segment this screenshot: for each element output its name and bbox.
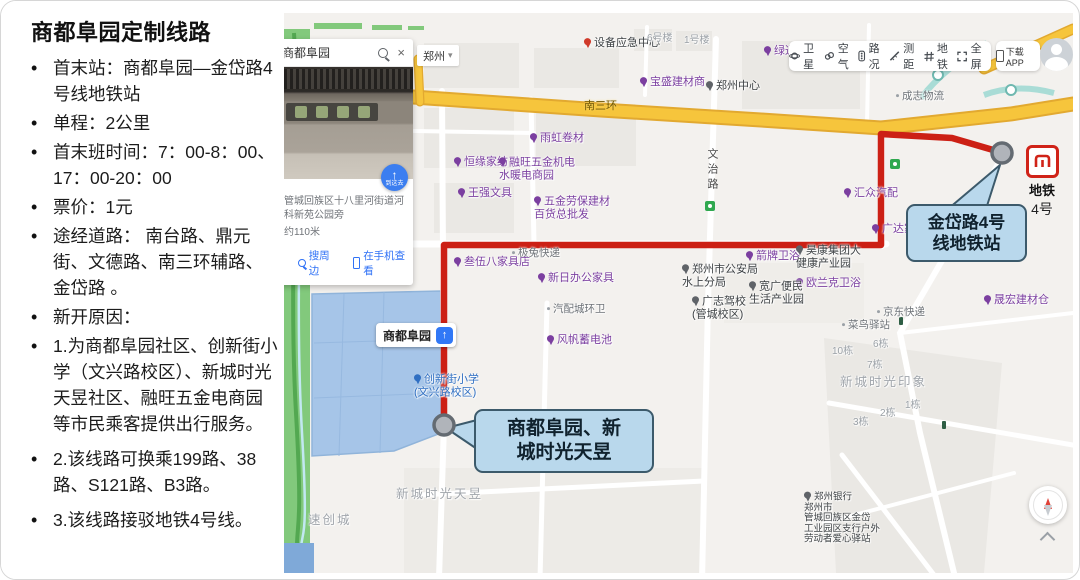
map-poi-label[interactable]: 箭牌卫浴 [746, 250, 800, 263]
start-callout-line1: 商都阜园、新 [476, 417, 652, 441]
compass-control[interactable] [1029, 486, 1067, 524]
place-card-panel: 商都阜园 × ↑ 到这去 管城回族区十八里河街道河科新苑公园旁 约110米 搜 [284, 39, 413, 285]
map-poi-label: 7栋 [867, 360, 883, 373]
poi-pin-icon [499, 157, 506, 164]
slide-frame: 商都阜园定制线路 首末站：商都阜园—金岱路4号线地铁站单程：2公里首末班时间：7… [0, 0, 1080, 580]
toolbar-satellite-button[interactable]: 卫星 [789, 40, 824, 72]
poi-pin-icon [804, 492, 811, 499]
map-poi-label[interactable]: 郑州市公安局 水上分局 [682, 263, 758, 288]
map-poi-label: 1栋 [905, 400, 921, 413]
view-on-mobile-link[interactable]: 在手机查看 [353, 248, 414, 278]
toolbar-label: 空气 [838, 40, 858, 72]
end-callout-line2: 线地铁站 [908, 233, 1025, 254]
map-poi-label[interactable]: 创新街小学 (文兴路校区) [414, 373, 479, 398]
map-poi-label[interactable]: 昊康集团大 健康产业园 [796, 244, 861, 269]
poi-pin-icon [749, 281, 756, 288]
place-chip[interactable]: 商都阜园 ↑ [376, 323, 456, 347]
poi-pin-icon [454, 157, 461, 164]
map-poi-label[interactable]: 叁伍八家具店 [454, 256, 530, 269]
building-sign [286, 103, 378, 121]
end-callout-pointer [948, 165, 1000, 209]
poi-pin-icon [458, 188, 465, 195]
road-name-label: 南三环 [584, 97, 617, 113]
map-poi-label[interactable]: 京东快递 [877, 306, 925, 319]
map-poi-label[interactable]: 晟宏建材仓 [984, 294, 1049, 307]
route-bullet: 票价：1元 [27, 194, 278, 220]
poi-pin-icon [984, 295, 991, 302]
map-poi-label[interactable]: 新日办公家具 [538, 272, 614, 285]
map-poi-label: 10栋 [832, 346, 853, 359]
map-poi-label: 新城时光天昱 [396, 488, 483, 501]
navigate-arrow-icon[interactable]: ↑ [436, 327, 453, 344]
map-poi-label: 2栋 [880, 408, 896, 421]
poi-pin-icon [538, 273, 545, 280]
map-poi-label[interactable]: 汽配城环卫 [547, 303, 606, 316]
map-poi-label[interactable]: 宽广便民 生活产业园 [749, 280, 804, 305]
map-toolbar: 卫星空气路况测距地铁全屏 [789, 41, 991, 71]
start-terminus-marker[interactable] [434, 415, 454, 435]
start-station-callout: 商都阜园、新 城时光天昱 [474, 409, 654, 473]
toolbar-traffic-button[interactable]: 路况 [858, 40, 889, 72]
map-poi-label[interactable]: 五金劳保建材 百货总批发 [534, 195, 610, 220]
map-poi-label[interactable]: 菜鸟驿站 [842, 319, 890, 332]
toolbar-metro-button[interactable]: 地铁 [924, 40, 958, 72]
road-name-label: 文治路 [704, 148, 720, 193]
poi-pin-icon [746, 251, 753, 258]
poi-pin-icon [844, 188, 851, 195]
map-poi-label[interactable]: 融旺五金机电 水暖电商园 [499, 156, 575, 181]
poi-pin-icon [530, 133, 537, 140]
poi-pin-icon [692, 296, 699, 303]
map-poi-label: 3栋 [853, 417, 869, 430]
place-links: 搜周边 在手机查看 [284, 240, 413, 278]
poi-pin-icon [682, 264, 689, 271]
map-poi-label: 新城时光印象 [840, 376, 927, 389]
poi-pin-icon [764, 46, 771, 53]
place-chip-label: 商都阜园 [383, 327, 431, 344]
route-info-sidebar: 商都阜园定制线路 首末站：商都阜园—金岱路4号线地铁站单程：2公里首末班时间：7… [1, 1, 284, 580]
toolbar-ruler-button[interactable]: 测距 [889, 40, 924, 72]
poi-pin-icon [547, 335, 554, 342]
end-callout-line1: 金岱路4号 [908, 212, 1025, 233]
route-bullet: 2.该线路可换乘199路、38路、S121路、B3路。 [27, 446, 278, 498]
streetview-photo[interactable]: ↑ 到这去 [284, 67, 413, 179]
route-bullet: 3.该线路接驳地铁4号线。 [27, 507, 278, 533]
go-here-button[interactable]: ↑ 到这去 [381, 164, 408, 191]
search-bar[interactable]: 商都阜园 × [284, 39, 413, 67]
map-poi-label[interactable]: 风帆蓄电池 [547, 334, 612, 347]
go-here-label: 到这去 [385, 181, 403, 187]
map-poi-label[interactable]: 郑州银行 郑州市 管城回族区金岱 工业园区支行户外 劳动者爱心驿站 [804, 492, 880, 546]
metro-entrance-icons [705, 159, 900, 211]
map-poi-label: 6栋 [873, 339, 889, 352]
zhengzhou-metro-logo-icon [1026, 145, 1059, 178]
map-poi-label: 速创城 [308, 514, 352, 527]
route-bullet: 1.为商都阜园社区、创新街小学（文兴路校区）、新城时光天昱社区、融旺五金电商园等… [27, 333, 278, 437]
search-nearby-label: 搜周边 [309, 248, 339, 278]
baidu-map-canvas[interactable]: 雨虹卷材恒缘家纺融旺五金机电 水暖电商园王强文具五金劳保建材 百货总批发极兔快递… [284, 13, 1073, 573]
poi-pin-icon [706, 81, 713, 88]
map-poi-label: 6号楼 [647, 33, 673, 46]
map-poi-label: 1号楼 [684, 35, 710, 48]
page-title: 商都阜园定制线路 [31, 15, 278, 47]
toolbar-label: 地铁 [937, 40, 957, 72]
building-roof-grille [284, 69, 413, 89]
toolbar-label: 全屏 [971, 40, 991, 72]
map-poi-label[interactable]: 广志驾校 (管城校区) [692, 295, 746, 320]
map-poi-label[interactable]: 汇众汽配 [844, 187, 898, 200]
route-bullet: 首末班时间：7：00-8：00、17：00-20：00 [27, 139, 278, 191]
poi-pin-icon [414, 374, 421, 381]
search-icon[interactable] [378, 48, 388, 58]
route-bullet: 首末站：商都阜园—金岱路4号线地铁站 [27, 55, 278, 107]
user-avatar[interactable] [1040, 38, 1073, 71]
download-app-button[interactable]: 下载APP [996, 41, 1040, 71]
search-icon [298, 259, 306, 267]
city-name: 郑州 [423, 48, 445, 64]
close-icon[interactable]: × [397, 45, 405, 60]
phone-icon [996, 50, 1004, 62]
poi-pin-icon [872, 224, 879, 231]
metro-label: 地铁 [1019, 180, 1065, 199]
toolbar-fullscreen-button[interactable]: 全屏 [957, 40, 991, 72]
map-poi-label[interactable]: 郑州中心 [706, 80, 760, 93]
poi-pin-icon [796, 245, 803, 252]
end-station-callout: 金岱路4号 线地铁站 [906, 204, 1027, 262]
view-on-mobile-label: 在手机查看 [363, 248, 413, 278]
phone-icon [353, 257, 361, 269]
route-bullet: 单程：2公里 [27, 110, 278, 136]
city-selector[interactable]: 郑州 ▾ [417, 45, 459, 66]
poi-pin-icon [640, 77, 647, 84]
route-bullet: 新开原因： [27, 304, 278, 330]
start-callout-line2: 城时光天昱 [476, 441, 652, 465]
map-poi-label[interactable]: 成志物流 [896, 90, 944, 103]
map-poi-label[interactable]: 王强文具 [458, 187, 512, 200]
route-bullet: 途经道路： 南台路、鼎元街、文德路、南三环辅路、金岱路 。 [27, 223, 278, 301]
address-line1: 管城回族区十八里河街道河科新苑公园旁 [284, 195, 405, 223]
poi-pin-icon [534, 196, 541, 203]
map-poi-label[interactable]: 欧兰克卫浴 [796, 277, 861, 290]
toolbar-label: 路况 [869, 40, 889, 72]
map-poi-label[interactable]: 宝盛建材商 [640, 76, 705, 89]
chevron-down-icon: ▾ [448, 50, 453, 61]
toolbar-label: 卫星 [803, 40, 823, 72]
address-line2: 约110米 [284, 226, 405, 240]
toolbar-air-button[interactable]: 空气 [824, 40, 859, 72]
up-arrow-icon: ↑ [392, 169, 398, 181]
search-nearby-link[interactable]: 搜周边 [298, 248, 339, 278]
map-poi-label[interactable]: 雨虹卷材 [530, 132, 584, 145]
end-terminus-marker[interactable] [992, 143, 1012, 163]
poi-pin-icon [454, 257, 461, 264]
compass-south-needle [1044, 505, 1052, 520]
route-info-list: 首末站：商都阜园—金岱路4号线地铁站单程：2公里首末班时间：7：00-8：00、… [27, 55, 278, 533]
toolbar-label: 测距 [903, 40, 923, 72]
poi-pin-icon [584, 38, 591, 45]
search-input[interactable]: 商都阜园 [284, 44, 378, 61]
download-app-label: 下载APP [1006, 45, 1040, 68]
